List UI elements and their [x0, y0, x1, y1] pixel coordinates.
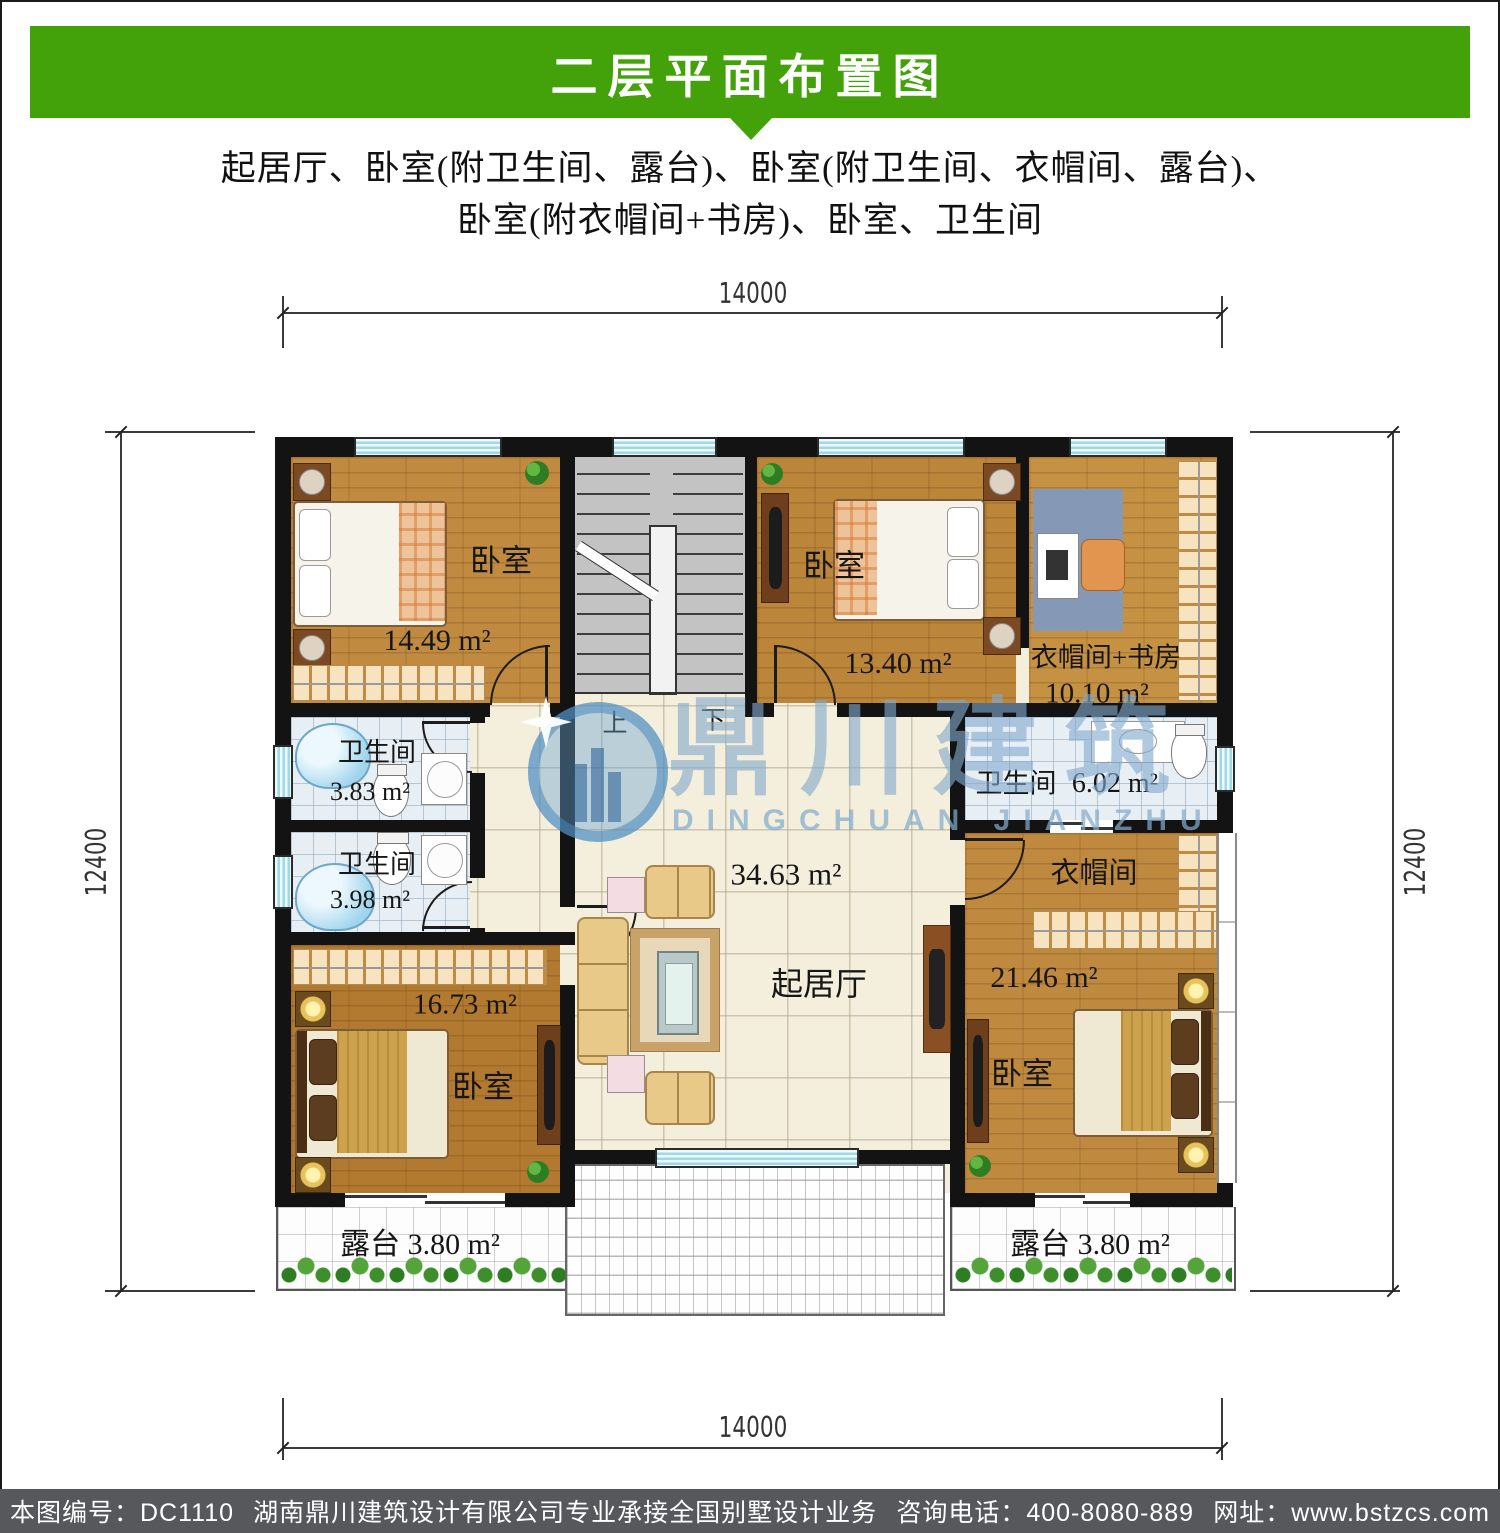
dimension-line-left — [120, 432, 122, 1292]
pillow — [947, 559, 979, 609]
pillow — [299, 565, 331, 617]
footer-website: 网址：www.bstzcs.com — [1213, 1493, 1490, 1529]
nightstand — [983, 617, 1021, 655]
bedroom-n-area: 13.40 m² — [844, 649, 951, 679]
bed-sw — [295, 1029, 449, 1159]
plant-icon — [969, 1155, 991, 1177]
pillow — [1171, 1019, 1199, 1065]
pillow — [309, 1039, 337, 1085]
wall-stair-east — [745, 457, 757, 703]
sink-icon — [421, 835, 467, 885]
bed-nw — [293, 501, 447, 627]
window-west-bath1 — [273, 745, 293, 799]
dimension-ext-left-top — [105, 431, 255, 433]
dimension-left-value: 12400 — [81, 828, 114, 897]
wall-south-east-1 — [950, 1193, 1035, 1207]
wall-south-east-2 — [1130, 1193, 1233, 1207]
tv-cabinet — [761, 493, 789, 603]
window-north-3 — [817, 437, 965, 457]
footer-company: 湖南鼎川建筑设计有限公司专业承接全国别墅设计业务 — [253, 1493, 877, 1529]
bedroom-nw-area: 14.49 m² — [383, 626, 490, 656]
pillow — [309, 1095, 337, 1141]
wardrobe-icon — [1178, 461, 1217, 701]
study-desk — [1037, 533, 1079, 599]
plant-icon — [527, 1161, 549, 1183]
window-band-east — [1217, 833, 1237, 1183]
wall-living-south-2 — [855, 1150, 950, 1164]
bedroom-se-cloak-label: 衣帽间 — [1050, 860, 1137, 889]
coffee-table — [657, 951, 699, 1035]
wall-bedroomnw-east — [560, 457, 575, 703]
wall-mid-a1 — [275, 703, 490, 717]
footer-bar: 本图编号：DC1110 湖南鼎川建筑设计有限公司专业承接全国别墅设计业务 咨询电… — [0, 1489, 1500, 1533]
watermark-logo — [528, 702, 668, 842]
wall-west — [275, 457, 291, 1207]
dimension-ext-top-left — [282, 296, 284, 348]
side-table — [607, 877, 645, 913]
page-title: 二层平面布置图 — [551, 38, 950, 107]
watermark-cn: 鼎川建筑 — [668, 696, 1196, 802]
headboard — [1201, 1011, 1211, 1131]
logo-bar — [591, 748, 604, 822]
door-leaf-bedroom-nw — [545, 645, 548, 703]
bath-w1-area: 3.83 m² — [330, 779, 410, 805]
bedroom-se-area: 21.46 m² — [990, 963, 1097, 993]
bedroom-sw-area: 16.73 m² — [413, 991, 517, 1020]
bedroom-n-label: 卧室 — [803, 551, 865, 582]
dimension-top-value: 14000 — [719, 278, 788, 311]
living-label: 起居厅 — [771, 968, 867, 1000]
logo-bar — [574, 764, 587, 822]
wardrobe-icon — [1033, 911, 1217, 949]
sliding-door-leaf — [1083, 1201, 1130, 1204]
computer-icon — [1046, 550, 1068, 580]
bedside-lamp — [1178, 1137, 1214, 1173]
pillow — [299, 509, 331, 561]
sofa — [577, 917, 629, 1065]
bath-w2-area: 3.98 m² — [330, 887, 410, 913]
sliding-door-leaf — [345, 1195, 427, 1198]
bedside-lamp — [295, 991, 331, 1027]
wall-living-south-1 — [575, 1150, 655, 1164]
bath-w2-label: 卫生间 — [338, 852, 416, 878]
stair-treads-right — [673, 473, 743, 691]
tv-cabinet — [967, 1019, 989, 1143]
porch-roof — [565, 1164, 945, 1316]
subtitle-line-2: 卧室(附衣帽间+书房)、卧室、卫生间 — [0, 192, 1500, 243]
sliding-door-leaf — [425, 1201, 505, 1204]
dimension-line-right — [1392, 432, 1394, 1292]
cloak-study-label: 衣帽间+书房 — [1031, 645, 1181, 672]
logo-bar — [608, 772, 621, 822]
dimension-ext-bottom-left — [282, 1398, 284, 1460]
pillow — [1171, 1073, 1199, 1119]
floor-plan-page: 二层平面布置图 起居厅、卧室(附卫生间、露台)、卧室(附卫生间、衣帽间、露台)、… — [0, 0, 1500, 1533]
window-north-1 — [354, 437, 502, 457]
dimension-ext-bottom-right — [1221, 1398, 1223, 1460]
living-area: 34.63 m² — [731, 859, 842, 890]
armchair — [645, 865, 715, 919]
computer-desk — [923, 925, 951, 1053]
wall-south-west-2 — [505, 1193, 575, 1207]
bedroom-sw-label: 卧室 — [452, 1072, 514, 1103]
wardrobe-icon — [293, 665, 485, 701]
footer-phone: 咨询电话：400-8080-889 — [896, 1493, 1194, 1529]
desk-chair — [1081, 539, 1125, 591]
stair-divider — [649, 525, 677, 695]
footer-plan-number: 本图编号：DC1110 — [10, 1493, 234, 1529]
dimension-line-bottom — [283, 1447, 1223, 1449]
window-north-4 — [1069, 437, 1167, 457]
sliding-door-leaf — [1035, 1195, 1085, 1198]
window-east-bath — [1215, 746, 1235, 792]
plant-icon — [761, 463, 783, 485]
bedroom-se-label: 卧室 — [991, 1059, 1053, 1090]
dimension-ext-right-top — [1250, 431, 1400, 433]
nightstand — [983, 463, 1021, 501]
window-north-2 — [612, 437, 717, 457]
dimension-ext-right-bottom — [1250, 1290, 1400, 1292]
window-living-south — [655, 1148, 859, 1168]
bed-se — [1073, 1009, 1213, 1137]
door-leaf-bath-w1 — [422, 721, 470, 724]
wardrobe-icon — [293, 949, 547, 985]
wardrobe-icon — [1178, 835, 1217, 915]
bedroom-nw-label: 卧室 — [470, 546, 532, 577]
side-table — [607, 1055, 645, 1093]
nightstand — [293, 629, 331, 667]
dimension-bottom-value: 14000 — [719, 1412, 788, 1445]
dimension-ext-left-bottom — [105, 1290, 255, 1292]
headboard — [297, 1031, 307, 1153]
wall-bedroomsw-north — [275, 932, 575, 945]
banner-pointer-triangle — [730, 118, 772, 140]
terrace-east-label: 露台 3.80 m² — [1010, 1230, 1170, 1260]
bath-w1-label: 卫生间 — [338, 740, 416, 766]
wall-bath-divider — [275, 820, 485, 832]
door-leaf-bedroom-se — [965, 838, 1023, 841]
tv-cabinet — [537, 1025, 561, 1145]
bedside-lamp — [1178, 973, 1214, 1009]
dimension-right-value: 12400 — [1400, 828, 1433, 897]
nightstand — [293, 463, 331, 501]
window-west-bath2 — [273, 855, 293, 909]
blanket — [1121, 1011, 1171, 1131]
blanket — [399, 503, 445, 621]
wall-bath-east-1 — [470, 717, 485, 723]
wall-suite-west-2 — [950, 905, 965, 1193]
door-leaf-bath-w2 — [422, 926, 470, 929]
watermark-en: DINGCHUAN JIANZHU — [672, 806, 1215, 836]
title-banner: 二层平面布置图 — [30, 26, 1470, 118]
terrace-west-label: 露台 3.80 m² — [340, 1230, 500, 1260]
wall-bedroomsw-east-2 — [560, 985, 575, 1193]
pillow — [947, 507, 979, 557]
plant-icon — [525, 461, 549, 485]
sink-icon — [421, 753, 467, 805]
dimension-line-top — [283, 312, 1223, 314]
subtitle-line-1: 起居厅、卧室(附卫生间、露台)、卧室(附卫生间、衣帽间、露台)、 — [0, 140, 1500, 191]
armchair — [645, 1071, 715, 1125]
floor-plan: 卧室 14.49 m² 卧室 13.40 m² 衣帽间+书房 10.10 m² … — [275, 437, 1233, 1315]
blanket — [337, 1031, 407, 1153]
bedside-lamp — [295, 1157, 331, 1193]
dimension-ext-top-right — [1221, 296, 1223, 348]
wall-south-west-1 — [275, 1193, 345, 1207]
